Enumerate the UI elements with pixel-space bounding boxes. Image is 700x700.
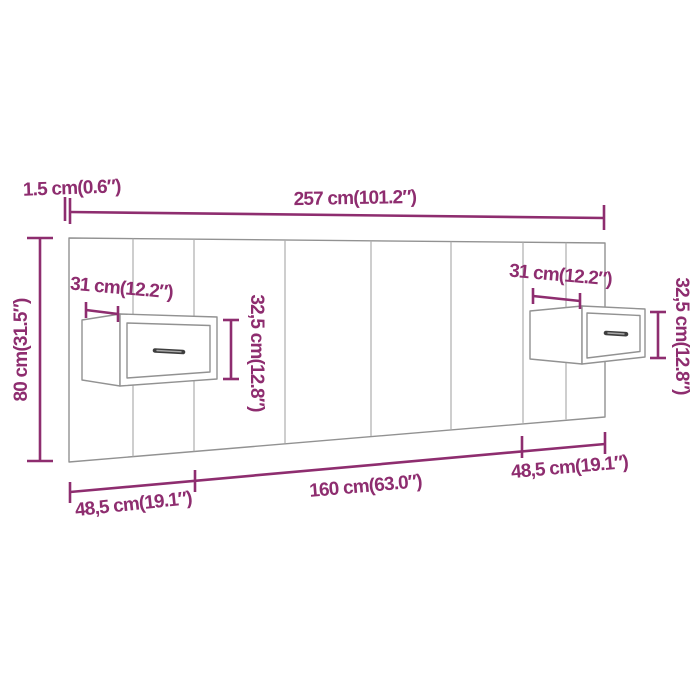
dim-bottom-left-label: 48,5 cm(19.1″) bbox=[74, 488, 193, 521]
dim-left-cabinet-height-label: 32,5 cm(12.8″) bbox=[246, 294, 267, 412]
dim-total-width-label: 257 cm(101.2″) bbox=[293, 187, 416, 210]
dim-right-cabinet-height-label: 32,5 cm(12.8″) bbox=[671, 277, 692, 395]
dimension-diagram-svg: 1.5 cm(0.6″) 257 cm(101.2″) 80 cm(31.5″)… bbox=[0, 0, 700, 700]
left-cabinet-side bbox=[82, 314, 120, 386]
product-dimension-diagram: 1.5 cm(0.6″) 257 cm(101.2″) 80 cm(31.5″)… bbox=[0, 0, 700, 700]
dim-bottom-right-label: 48,5 cm(19.1″) bbox=[510, 452, 629, 483]
dim-total-width-line bbox=[70, 212, 604, 218]
dim-height-label: 80 cm(31.5″) bbox=[11, 298, 32, 401]
right-cabinet bbox=[530, 306, 645, 364]
left-cabinet bbox=[82, 314, 217, 386]
dim-thickness-label: 1.5 cm(0.6″) bbox=[23, 176, 122, 200]
right-cabinet-handle-highlight bbox=[608, 333, 624, 334]
right-cabinet-side bbox=[530, 306, 582, 364]
dim-bottom-middle-label: 160 cm(63.0″) bbox=[308, 471, 423, 502]
